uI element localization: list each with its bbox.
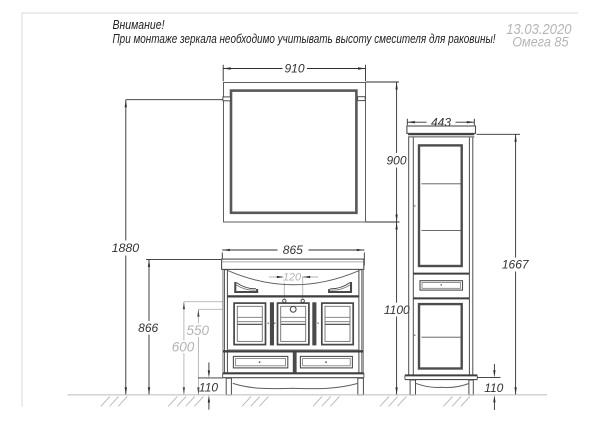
svg-text:1100: 1100 <box>384 303 410 317</box>
svg-text:1667: 1667 <box>502 258 530 272</box>
svg-text:600: 600 <box>172 340 195 355</box>
svg-text:110: 110 <box>484 381 503 395</box>
svg-text:866: 866 <box>138 321 158 335</box>
svg-text:120: 120 <box>283 271 302 283</box>
svg-text:910: 910 <box>284 62 304 76</box>
svg-text:При монтаже зеркала необходимо: При монтаже зеркала необходимо учитывать… <box>113 31 496 46</box>
svg-text:1880: 1880 <box>112 241 140 255</box>
svg-text:900: 900 <box>386 154 406 168</box>
svg-text:Омега 85: Омега 85 <box>512 34 568 50</box>
svg-text:865: 865 <box>283 243 303 257</box>
svg-text:550: 550 <box>187 323 210 338</box>
svg-text:110: 110 <box>199 380 218 394</box>
svg-text:Внимание!: Внимание! <box>113 17 165 32</box>
